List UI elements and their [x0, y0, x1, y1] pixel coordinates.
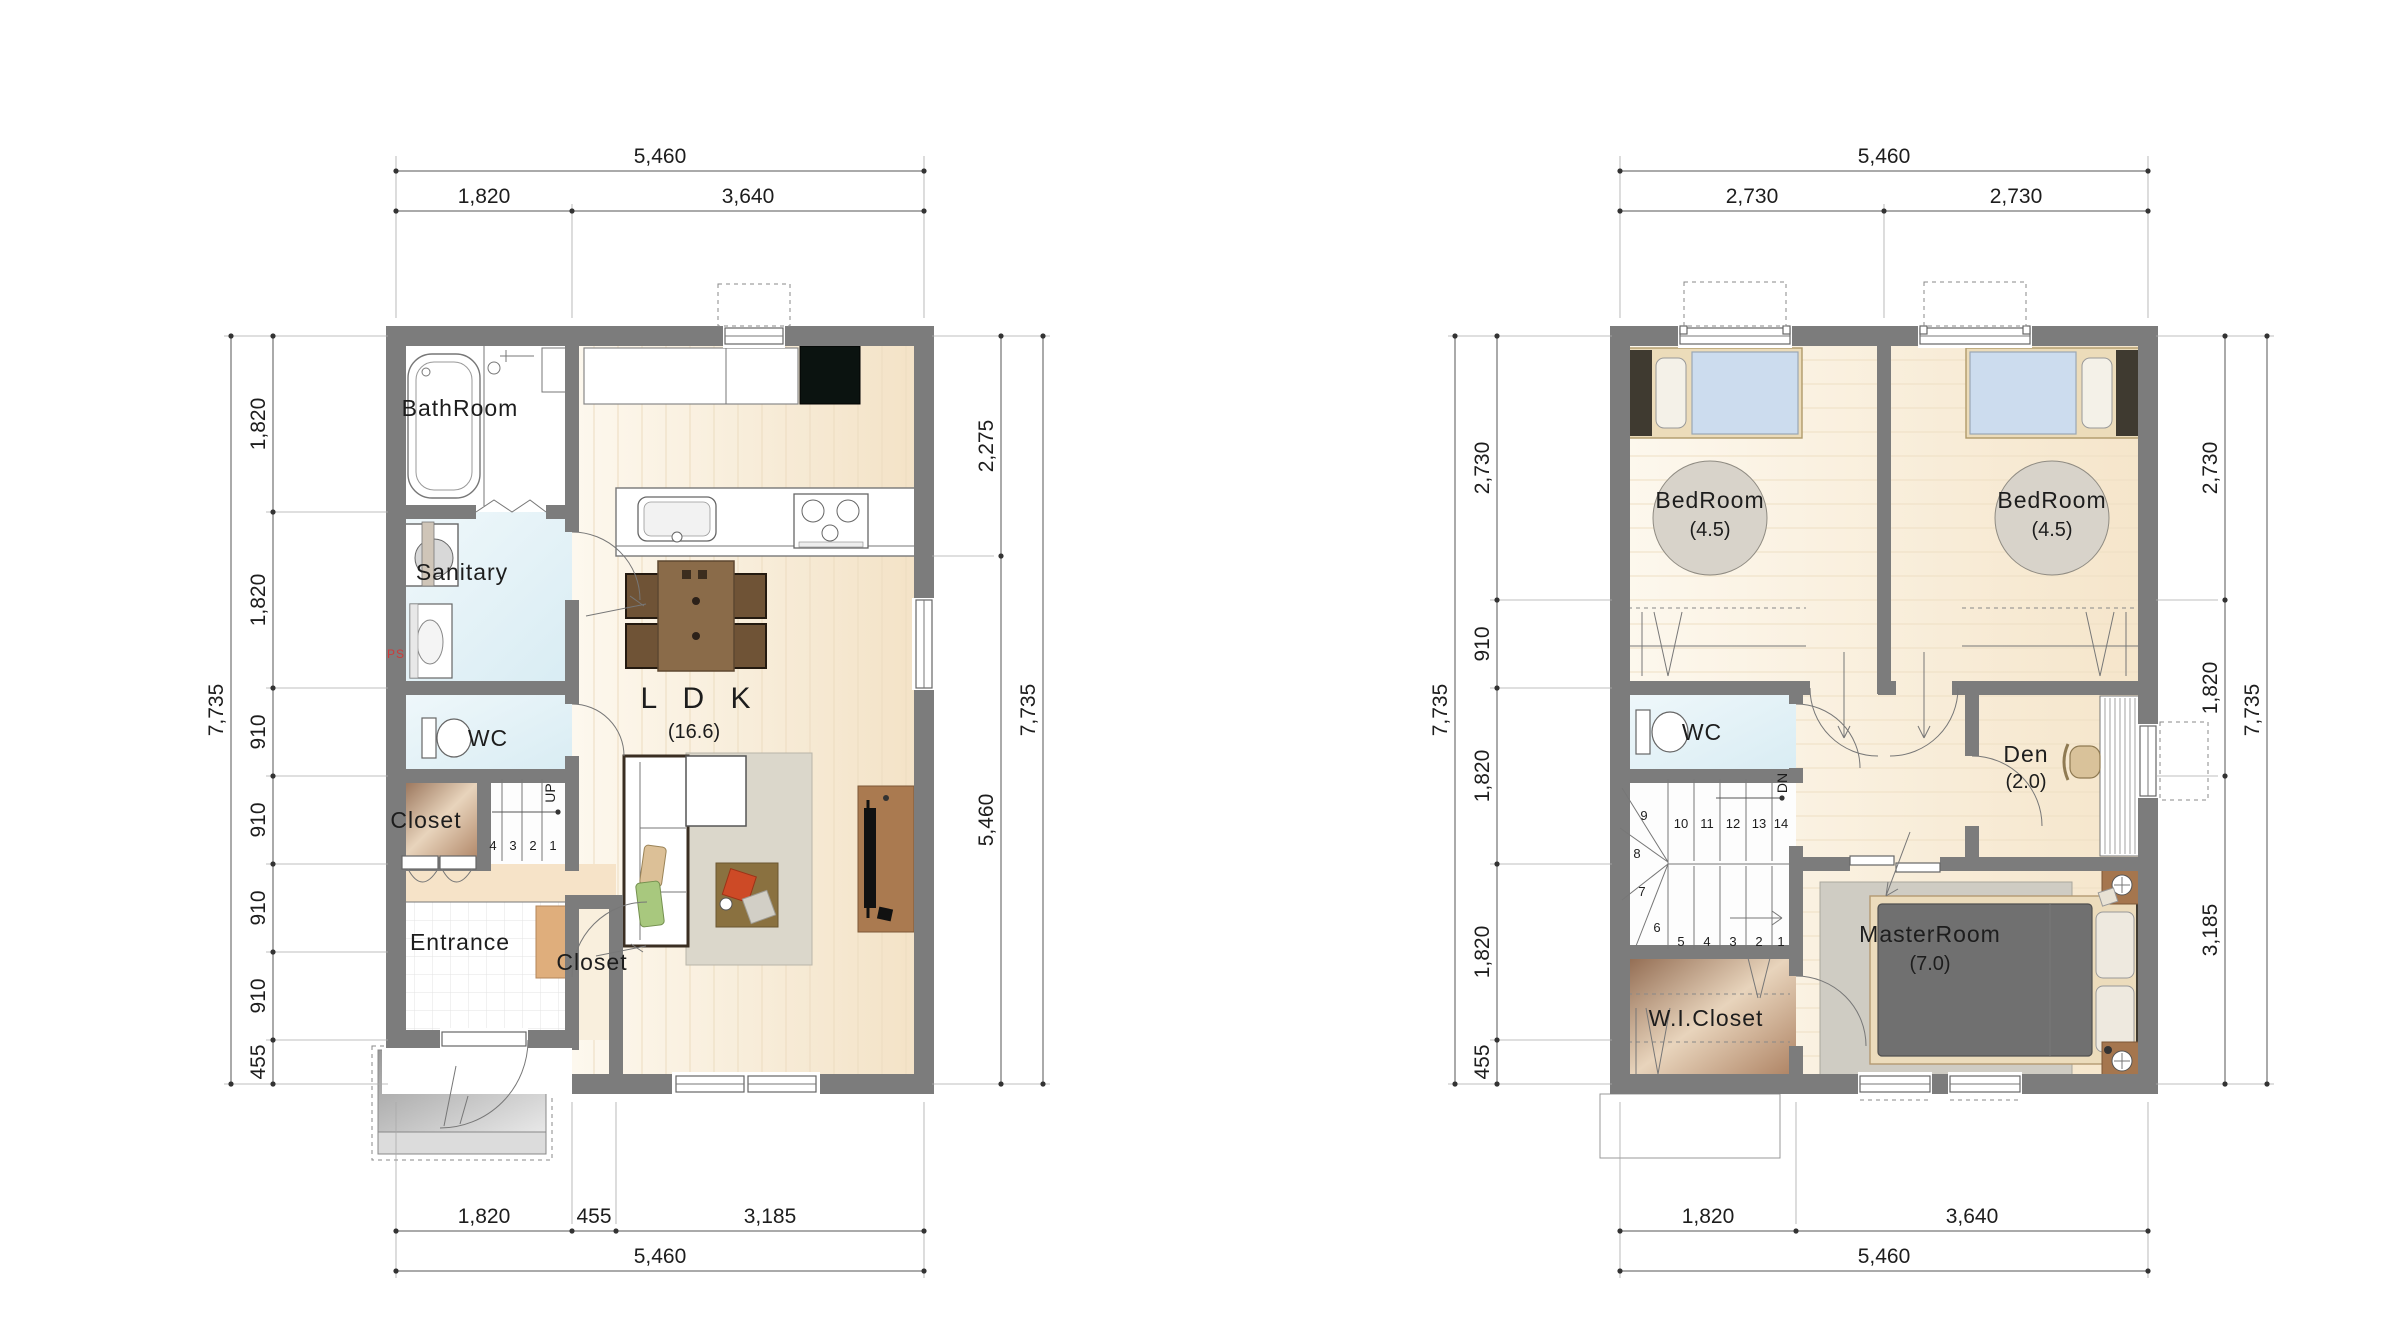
stair-num: 10 [1674, 816, 1688, 831]
room-size-master: (7.0) [1909, 953, 1950, 975]
bedroom2-window-icon [1920, 282, 2030, 344]
dim-bottom-seg: 1,820 [1682, 1205, 1735, 1228]
kitchen-island [616, 488, 917, 556]
stair-num: 1 [549, 838, 556, 853]
stair-num: 11 [1700, 816, 1714, 831]
dim-right-total: 7,735 [2241, 684, 2264, 737]
room-label-bathroom: BathRoom [402, 395, 519, 421]
dim-left-total: 7,735 [205, 684, 228, 737]
round-rug-bedroom2 [1995, 461, 2109, 575]
dim-left-seg: 455 [247, 1044, 270, 1079]
room-label-wic: W.I.Closet [1649, 1005, 1764, 1031]
bedroom1-window-icon [1680, 282, 1790, 344]
dim-left-seg: 455 [1471, 1044, 1494, 1079]
porch-roof-outline [1600, 1094, 1780, 1158]
dim-bottom-seg: 1,820 [458, 1205, 511, 1228]
room-size-den: (2.0) [2005, 771, 2046, 793]
tv-board [858, 786, 914, 932]
stair-num: 2 [529, 838, 536, 853]
room-label-master: MasterRoom [1859, 921, 2001, 947]
stair-num: 2 [1755, 934, 1762, 949]
stair-num: 6 [1653, 920, 1660, 935]
dim-right-seg: 2,275 [975, 420, 998, 473]
dim-top-seg: 2,730 [1990, 185, 2043, 208]
toilet-2f [1636, 710, 1688, 754]
first-floor-plan: 4 3 2 1 UP BathRoom Sanitary PS WC Close… [126, 56, 1136, 1316]
toilet-1f [422, 718, 471, 758]
dim-bottom-seg: 455 [576, 1205, 611, 1228]
room-label-ps: PS [387, 647, 405, 661]
stair-num: 12 [1726, 816, 1740, 831]
second-floor-plan: 10 11 12 13 14 9 8 7 6 5 4 3 2 1 DN BedR… [1350, 56, 2360, 1316]
room-size-bedroom2: (4.5) [2031, 519, 2072, 541]
kitchen-window-icon [718, 284, 790, 344]
refrigerator-icon [800, 346, 860, 404]
dim-left-total: 7,735 [1429, 684, 1452, 737]
dim-left-seg: 2,730 [1471, 442, 1494, 495]
dim-top-total: 5,460 [634, 145, 687, 168]
kitchen-counter-back [584, 348, 798, 404]
dim-bottom-seg: 3,185 [744, 1205, 797, 1228]
room-label-wc-2f: WC [1682, 719, 1722, 745]
stair-num: 3 [1729, 934, 1736, 949]
dim-left-seg: 910 [247, 714, 270, 749]
stair-num: 9 [1640, 808, 1647, 823]
dim-left-seg: 910 [247, 802, 270, 837]
dim-right-seg: 5,460 [975, 794, 998, 847]
dim-top-seg: 1,820 [458, 185, 511, 208]
stair-num: 7 [1638, 884, 1645, 899]
dim-top-total: 5,460 [1858, 145, 1911, 168]
dim-left-seg: 910 [247, 890, 270, 925]
room-label-closet-entry: Closet [556, 949, 627, 975]
dim-left-seg: 1,820 [1471, 926, 1494, 979]
dim-bottom-total: 5,460 [1858, 1245, 1911, 1268]
stair-num: 1 [1777, 934, 1784, 949]
dim-left-seg: 1,820 [247, 574, 270, 627]
bed-bedroom2 [1966, 348, 2140, 438]
dim-left-seg: 910 [1471, 626, 1494, 661]
stove-icon [794, 494, 868, 548]
stair-num: 4 [1703, 934, 1710, 949]
room-label-ldk: L D K [641, 682, 760, 715]
stair-num: 5 [1677, 934, 1684, 949]
dim-top-seg: 2,730 [1726, 185, 1779, 208]
room-label-closet-hall: Closet [390, 807, 461, 833]
stair-dn-label: DN [1774, 773, 1790, 793]
room-label-entrance: Entrance [410, 929, 510, 955]
coffee-table [716, 863, 778, 927]
room-size-ldk: (16.6) [668, 721, 720, 743]
room-label-den: Den [2003, 741, 2048, 767]
dim-left-seg: 1,820 [1471, 750, 1494, 803]
dim-right-seg: 1,820 [2199, 662, 2222, 715]
dim-left-seg: 910 [247, 978, 270, 1013]
stair-up-label: UP [542, 783, 558, 802]
dim-bottom-seg: 3,640 [1946, 1205, 1999, 1228]
bed-bedroom1 [1628, 348, 1802, 438]
dim-top-seg: 3,640 [722, 185, 775, 208]
room-label-bedroom1: BedRoom [1655, 487, 1764, 513]
dim-bottom-total: 5,460 [634, 1245, 687, 1268]
dining-window-icon [916, 600, 932, 688]
dim-left-seg: 1,820 [247, 398, 270, 451]
room-label-sanitary: Sanitary [416, 559, 508, 585]
dim-right-seg: 3,185 [2199, 904, 2222, 957]
stair-num: 4 [489, 838, 496, 853]
dim-right-total: 7,735 [1017, 684, 1040, 737]
floor-plan-sheet: 4 3 2 1 UP BathRoom Sanitary PS WC Close… [0, 0, 2400, 1335]
room-size-bedroom1: (4.5) [1689, 519, 1730, 541]
dining-table-set [626, 561, 766, 671]
master-side-table-top [2098, 866, 2142, 906]
stair-num: 13 [1752, 816, 1766, 831]
dim-right-seg: 2,730 [2199, 442, 2222, 495]
den-window-icon [2140, 722, 2208, 800]
vanity-sink [410, 604, 452, 678]
room-label-wc-1f: WC [468, 725, 508, 751]
round-rug-bedroom1 [1653, 461, 1767, 575]
stair-num: 14 [1774, 816, 1788, 831]
stair-num: 3 [509, 838, 516, 853]
room-label-bedroom2: BedRoom [1997, 487, 2106, 513]
stair-num: 8 [1633, 846, 1640, 861]
